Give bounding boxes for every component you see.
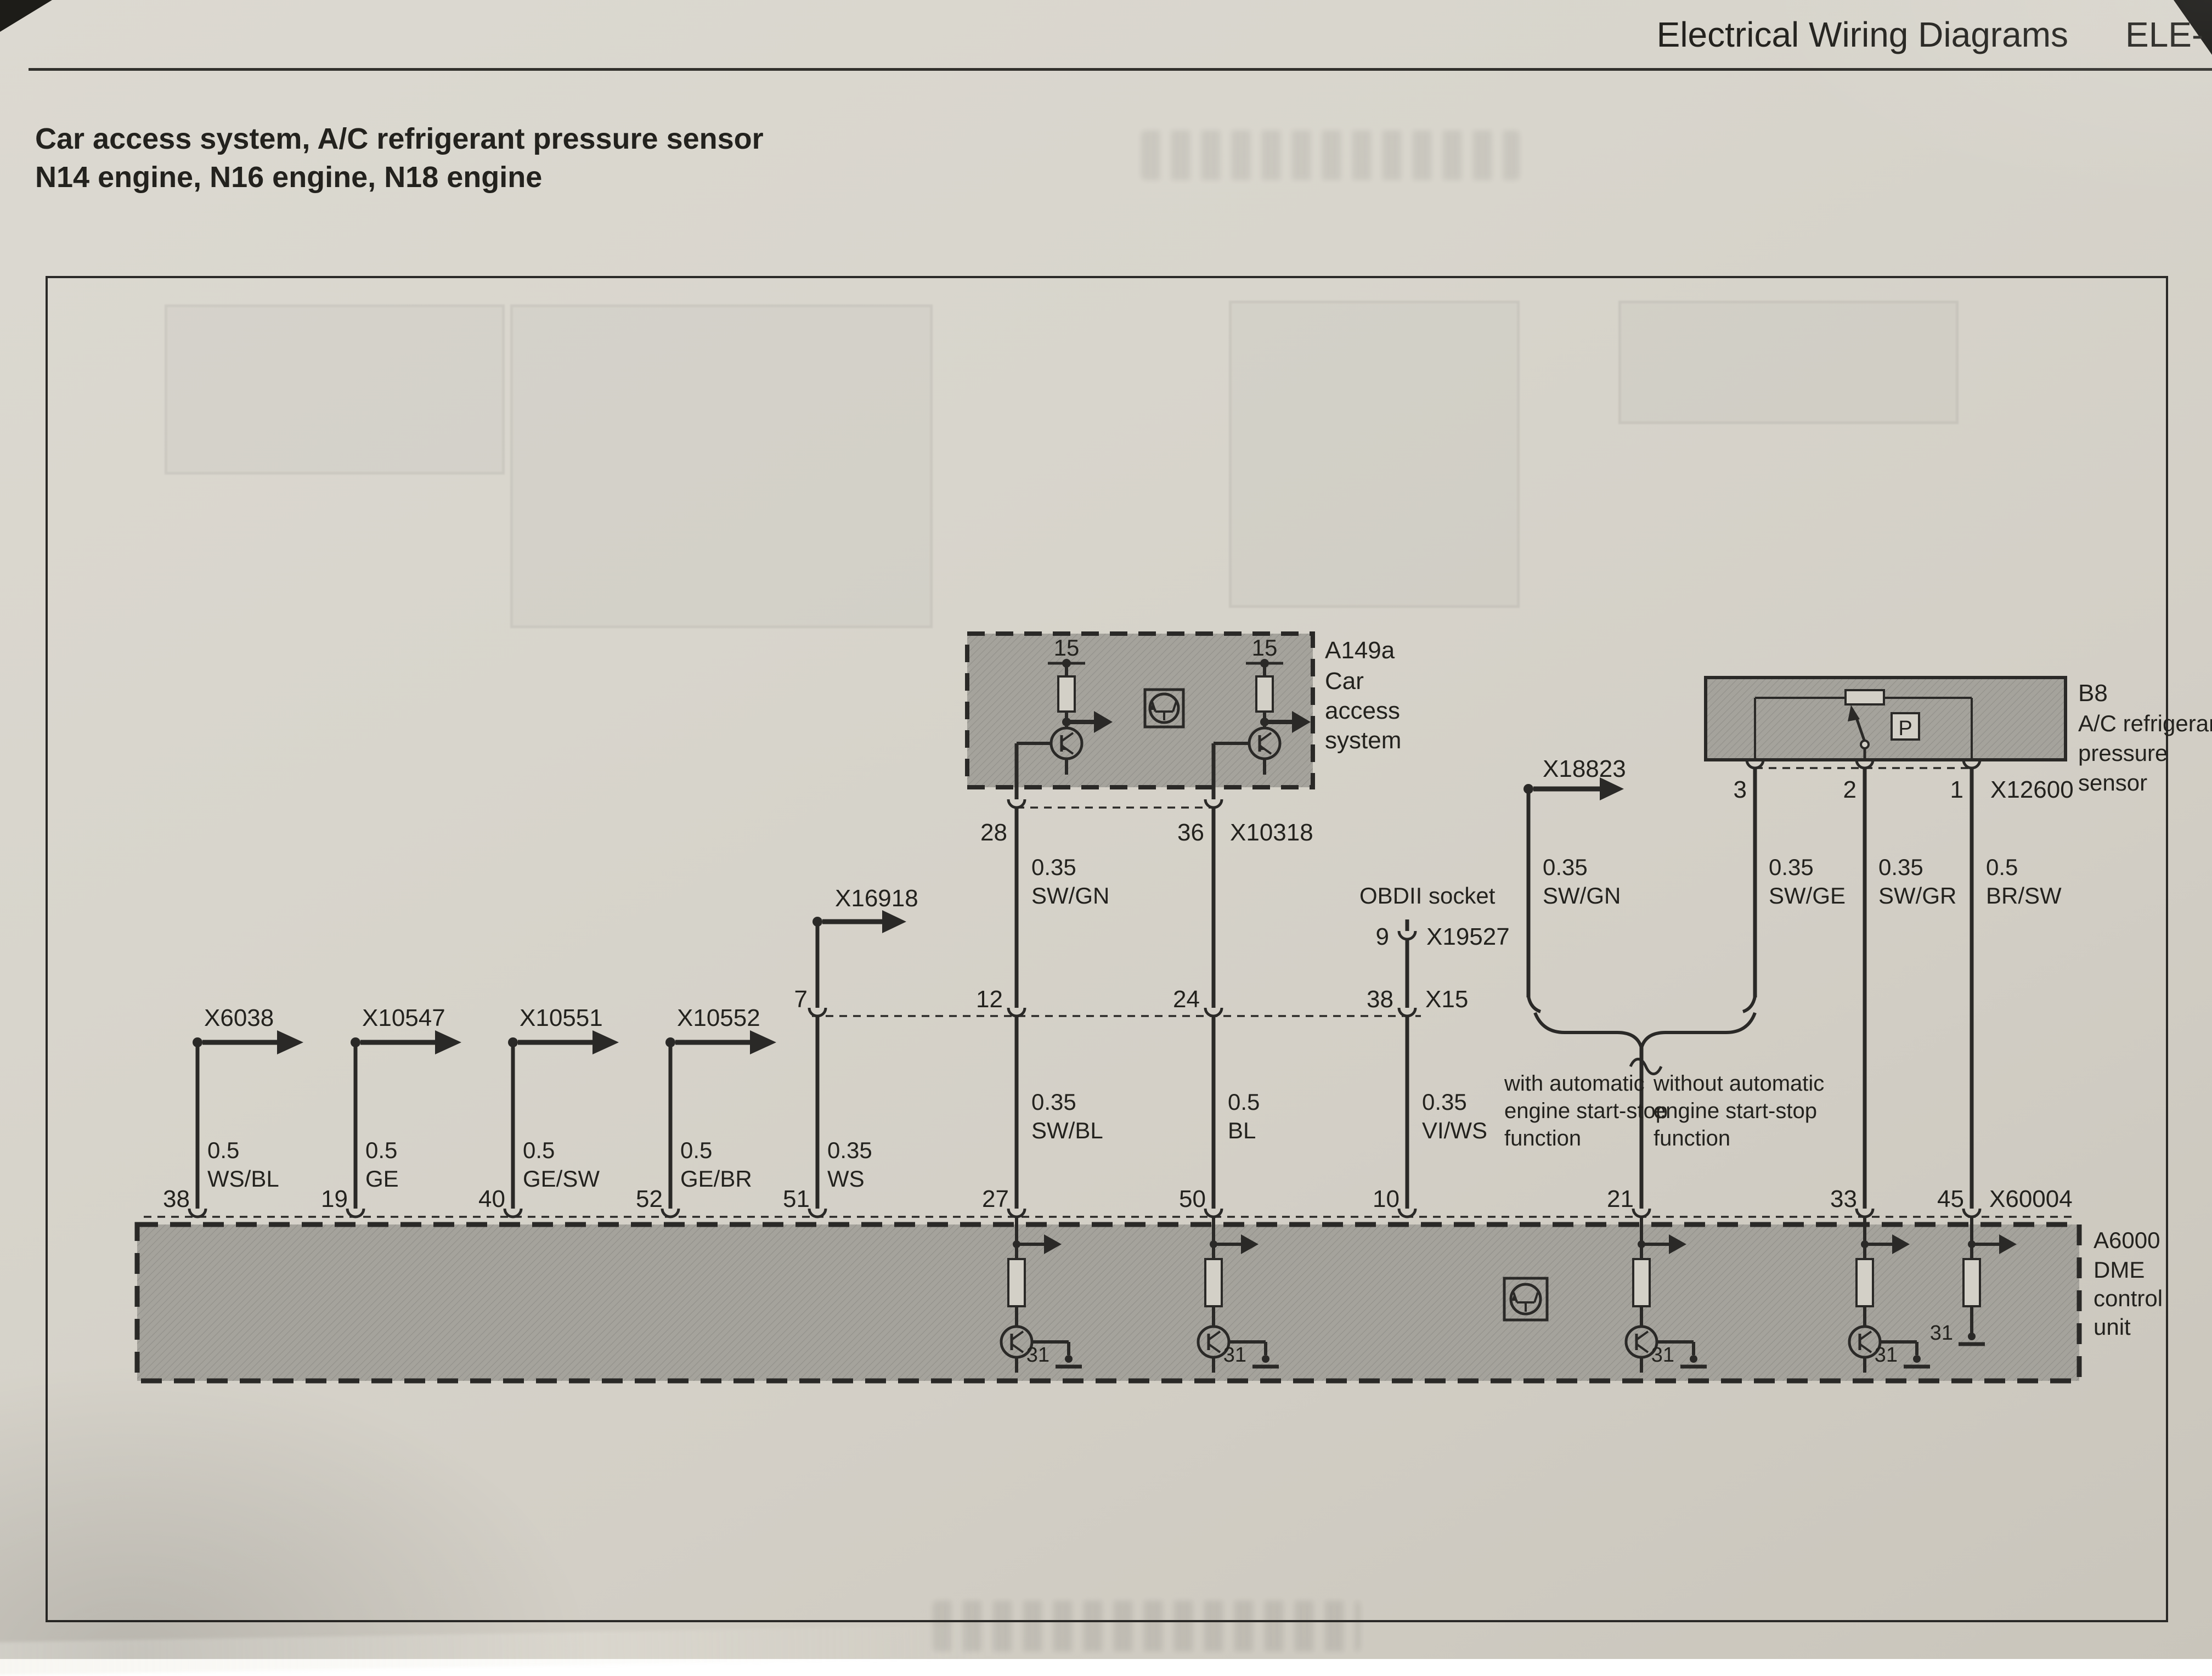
dme-name-line: DME	[2093, 1256, 2145, 1284]
a149a-name-line: system	[1325, 726, 1401, 755]
terminal-15-label: 15	[1045, 634, 1088, 662]
connector-x10551: X10551	[520, 1004, 603, 1032]
wire-size: 0.35	[1769, 854, 1814, 881]
x15-pin-7: 7	[768, 985, 808, 1014]
dme-pin-21: 21	[1584, 1185, 1634, 1214]
pin-socket	[1008, 1008, 1025, 1016]
dme-name-line: unit	[2093, 1313, 2131, 1341]
b8-name-line: A/C refrigerant	[2078, 710, 2212, 737]
dme-pin-52: 52	[613, 1185, 663, 1214]
pin-socket	[1008, 799, 1025, 808]
pin-socket	[1399, 931, 1415, 939]
wire-color: GE/SW	[523, 1165, 600, 1193]
b8-pin-3: 3	[1712, 776, 1747, 804]
pin-socket	[1205, 1008, 1222, 1016]
wire-color: BR/SW	[1986, 882, 2062, 910]
wire-color: WS/BL	[207, 1165, 279, 1193]
connector-x19527: X19527	[1426, 923, 1510, 951]
wire-size: 0.5	[1228, 1088, 1260, 1116]
b8-pin-2: 2	[1821, 776, 1857, 804]
connector-x15: X15	[1425, 985, 1468, 1014]
wire-size: 0.5	[207, 1137, 239, 1164]
a149a-pin-36: 36	[1160, 819, 1204, 847]
note-without-startstop: function	[1654, 1125, 1730, 1152]
ground-31-label: 31	[1625, 1343, 1674, 1368]
dme-pin-50: 50	[1156, 1185, 1206, 1214]
dme-pin-51: 51	[760, 1185, 810, 1214]
connector-x10318: X10318	[1230, 819, 1313, 847]
wire-size: 0.5	[523, 1137, 555, 1164]
wire-size: 0.35	[1878, 854, 1923, 881]
wiring-diagram-svg	[0, 0, 2212, 1659]
connector-x60004: X60004	[1989, 1185, 2073, 1214]
wire-color: BL	[1228, 1117, 1256, 1144]
diagram-frame	[47, 277, 2167, 1621]
note-with-startstop: function	[1504, 1125, 1581, 1152]
wire-size: 0.35	[827, 1137, 872, 1164]
wire-color: SW/GN	[1543, 882, 1621, 910]
wire-color: VI/WS	[1422, 1117, 1487, 1144]
dme-pin-19: 19	[298, 1185, 348, 1214]
a149a-name-line: Car	[1325, 667, 1364, 696]
wire-color: SW/GN	[1031, 882, 1109, 910]
dme-pin-33: 33	[1808, 1185, 1857, 1214]
wire-color: GE	[365, 1165, 399, 1193]
dme-pin-38: 38	[140, 1185, 190, 1214]
wire-color: GE/BR	[680, 1165, 752, 1193]
wire-size: 0.5	[680, 1137, 712, 1164]
wire-size: 0.35	[1422, 1088, 1467, 1116]
dme-pin-45: 45	[1915, 1185, 1964, 1214]
wire-size: 0.35	[1031, 854, 1076, 881]
dme-pin-27: 27	[960, 1185, 1009, 1214]
dme-pin-40: 40	[456, 1185, 505, 1214]
note-without-startstop: engine start-stop	[1654, 1097, 1817, 1125]
b8-name-line: pressure	[2078, 740, 2168, 767]
pin-socket	[1205, 799, 1222, 808]
ground-31-label: 31	[1000, 1343, 1049, 1368]
b8-box	[1706, 678, 2066, 760]
wire-color: WS	[827, 1165, 865, 1193]
obdii-pin-9: 9	[1356, 923, 1389, 951]
scanned-wiring-diagram-page: Electrical Wiring Diagrams ELE- Car acce…	[0, 0, 2212, 1659]
note-with-startstop: engine start-stop	[1504, 1097, 1668, 1125]
wire-size: 0.5	[1986, 854, 2018, 881]
connector-x6038: X6038	[204, 1004, 274, 1032]
wire-color: SW/BL	[1031, 1117, 1103, 1144]
dme-pin-10: 10	[1350, 1185, 1400, 1214]
x15-pin-24: 24	[1156, 985, 1200, 1014]
connector-x18823: X18823	[1543, 755, 1626, 783]
a149a-id: A149a	[1325, 636, 1395, 665]
pressure-symbol: P	[1892, 716, 1919, 741]
note-with-startstop: with automatic	[1504, 1070, 1645, 1097]
ground-31-label: 31	[1197, 1343, 1246, 1368]
connector-x10552: X10552	[677, 1004, 760, 1032]
a149a-pin-28: 28	[963, 819, 1007, 847]
connector-x10547: X10547	[362, 1004, 445, 1032]
pin-socket	[1399, 1008, 1415, 1016]
dme-id: A6000	[2093, 1227, 2160, 1254]
b8-name-line: sensor	[2078, 769, 2147, 797]
splice-brace	[1528, 996, 1755, 1074]
wire-color: SW/GR	[1878, 882, 1956, 910]
dme-box	[137, 1224, 2079, 1381]
wire-size: 0.35	[1031, 1088, 1076, 1116]
pin-socket	[809, 1008, 826, 1016]
wire-size: 0.35	[1543, 854, 1588, 881]
note-without-startstop: without automatic	[1654, 1070, 1824, 1097]
ground-31-label: 31	[1848, 1343, 1898, 1368]
x15-pin-38: 38	[1350, 985, 1393, 1014]
terminal-15-label: 15	[1243, 634, 1286, 662]
ground-31-label: 31	[1904, 1321, 1953, 1346]
wire-color: SW/GE	[1769, 882, 1846, 910]
b8-id: B8	[2078, 679, 2108, 708]
x15-pin-12: 12	[959, 985, 1003, 1014]
b8-pin-1: 1	[1928, 776, 1963, 804]
wire-size: 0.5	[365, 1137, 397, 1164]
connector-x12600: X12600	[1990, 776, 2074, 804]
connector-x16918: X16918	[835, 884, 918, 913]
a149a-name-line: access	[1325, 697, 1400, 725]
dme-name-line: control	[2093, 1285, 2163, 1312]
obdii-socket-label: OBDII socket	[1359, 882, 1495, 910]
